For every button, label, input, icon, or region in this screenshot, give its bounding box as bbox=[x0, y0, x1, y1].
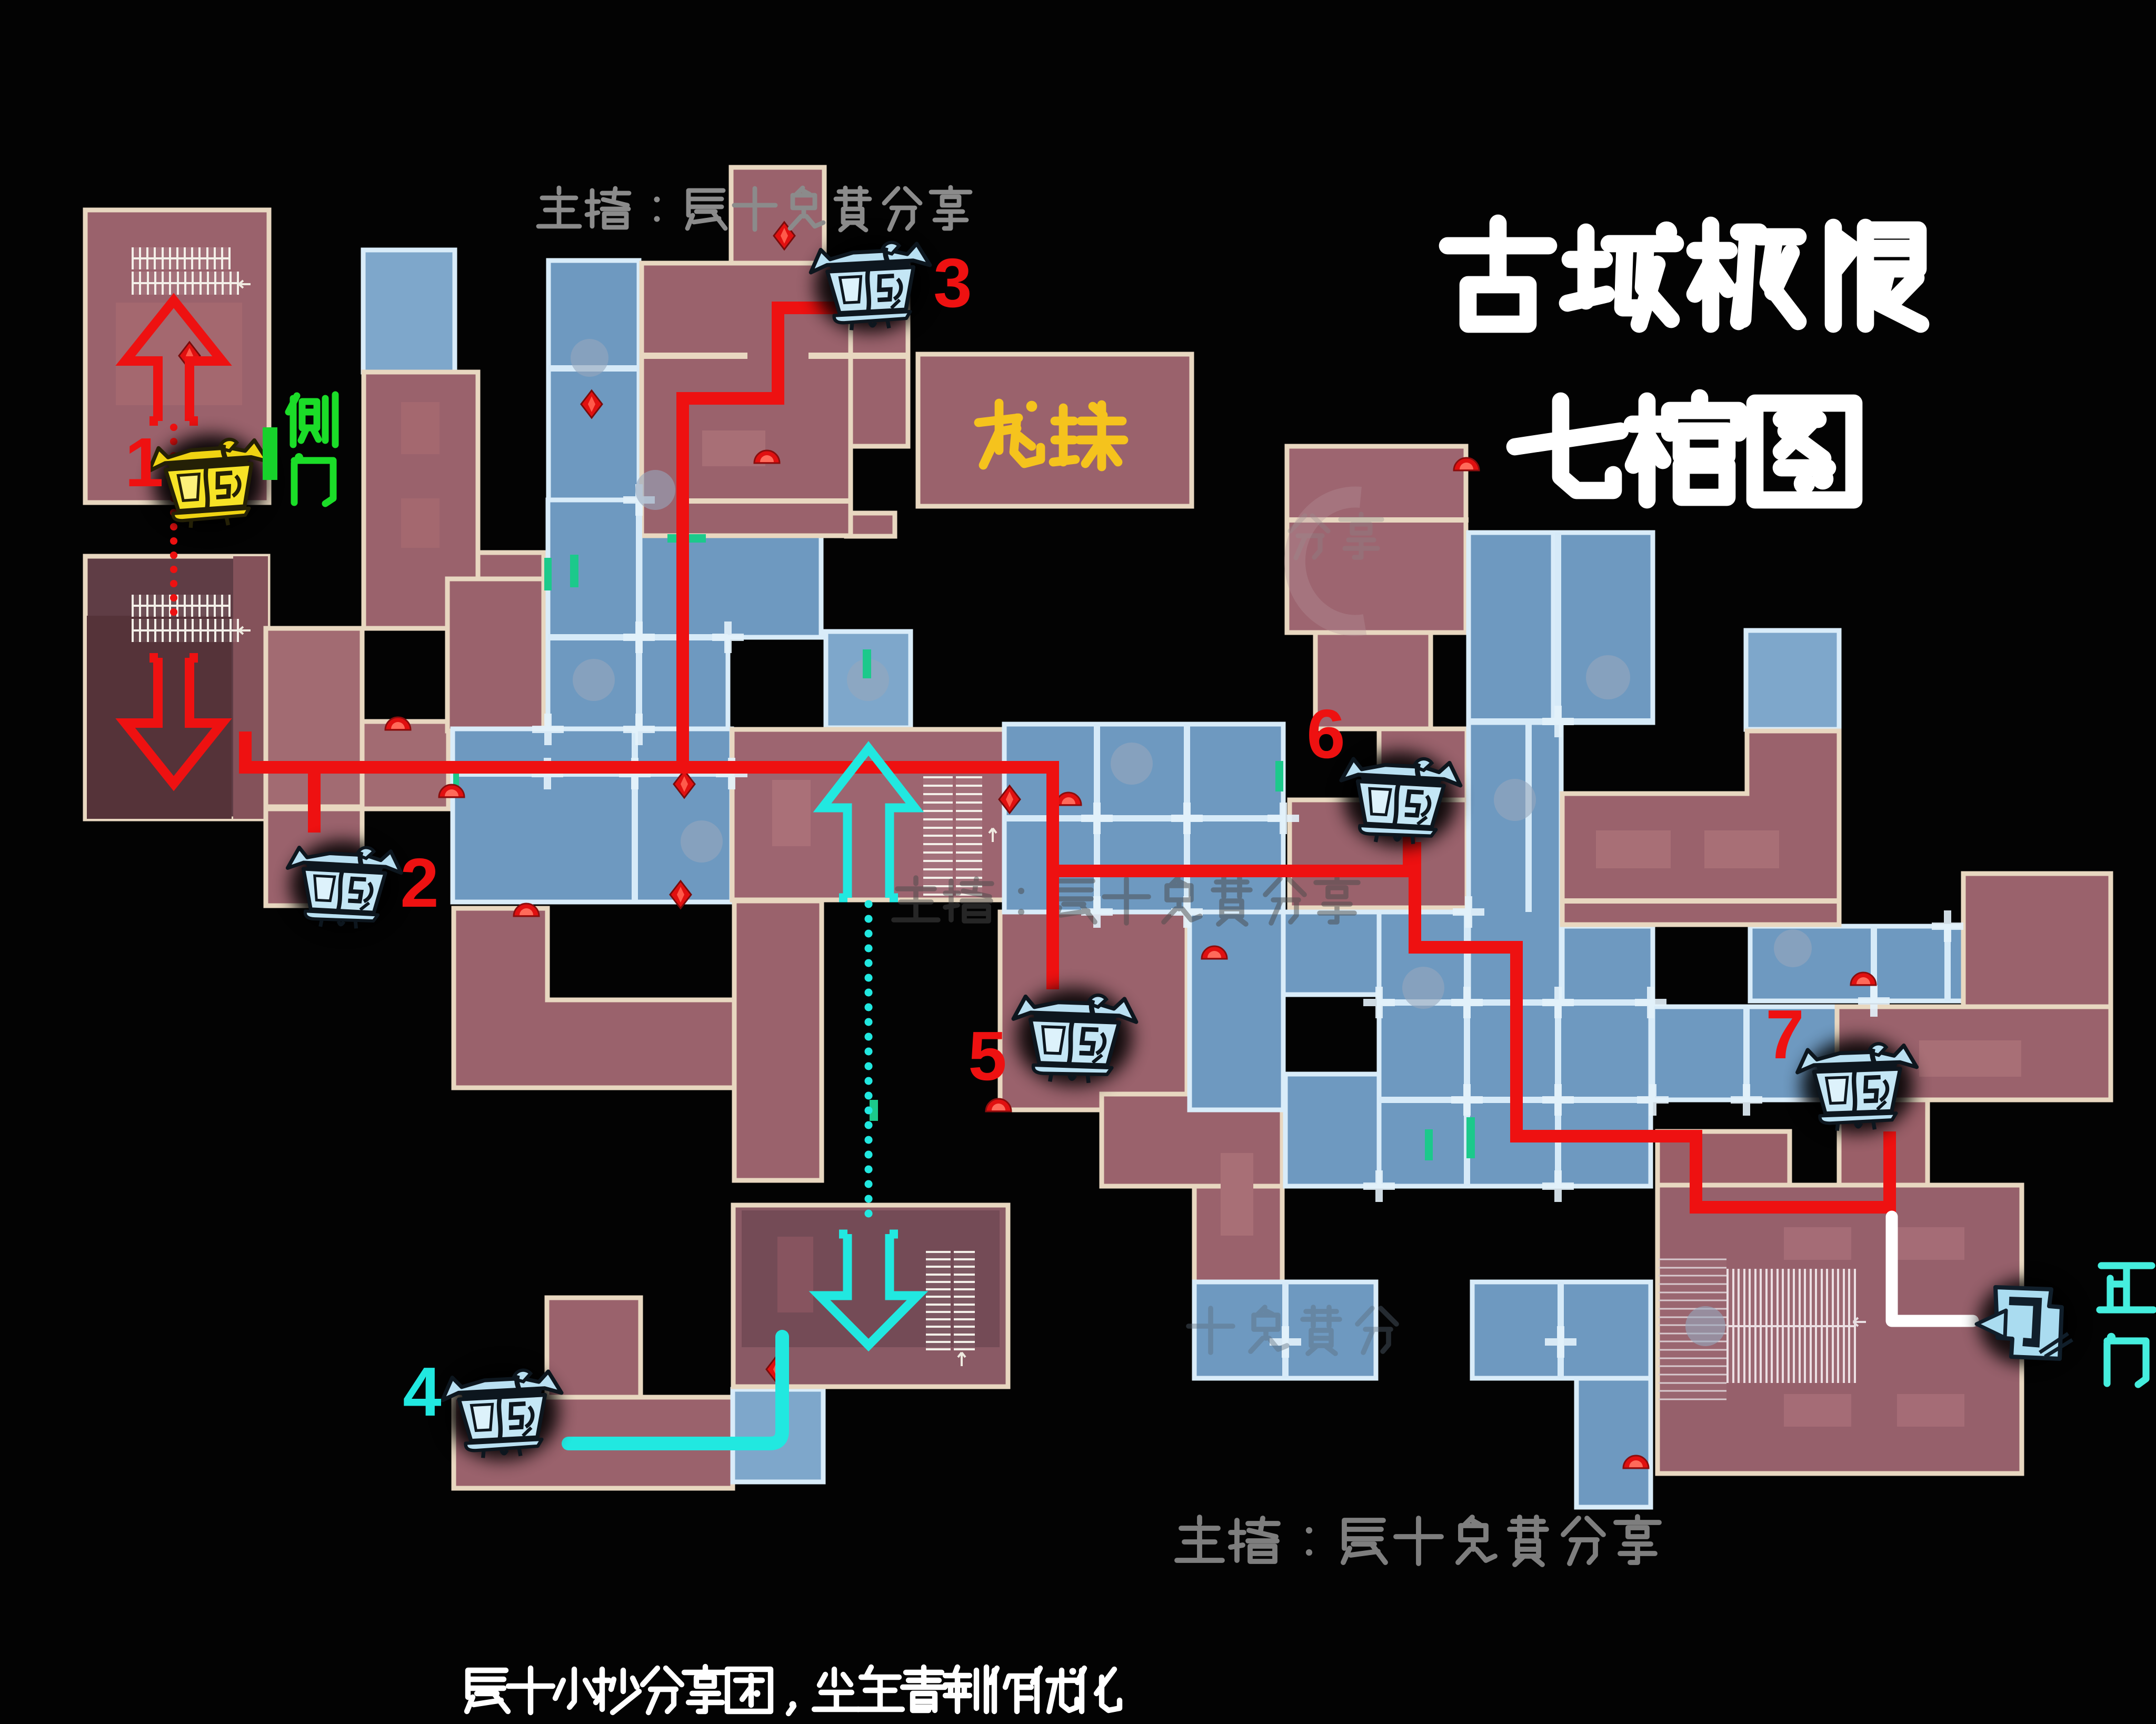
svg-text:7: 7 bbox=[1765, 996, 1804, 1073]
svg-text:6: 6 bbox=[1306, 695, 1345, 773]
svg-text:1: 1 bbox=[125, 424, 163, 501]
svg-text:4: 4 bbox=[403, 1353, 441, 1430]
svg-text:5: 5 bbox=[968, 1017, 1006, 1095]
svg-text:2: 2 bbox=[400, 844, 438, 921]
svg-text:3: 3 bbox=[933, 244, 972, 322]
